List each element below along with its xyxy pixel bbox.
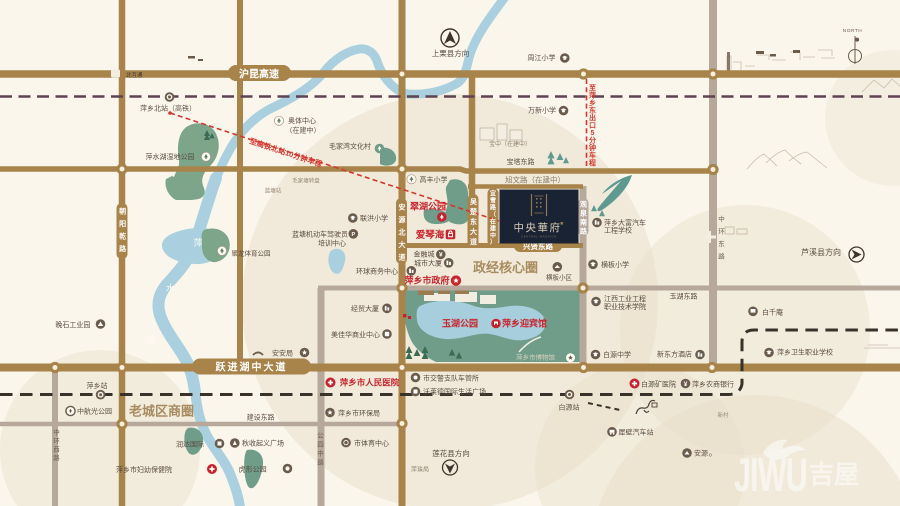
svg-text:P: P <box>351 232 355 238</box>
svg-text:萍乡农商银行: 萍乡农商银行 <box>692 380 734 389</box>
svg-text:横板小区: 横板小区 <box>546 273 573 282</box>
svg-text:毛家塘转盘: 毛家塘转盘 <box>292 177 320 185</box>
svg-text:路: 路 <box>317 458 324 467</box>
svg-text:观: 观 <box>580 200 587 209</box>
svg-text:程: 程 <box>589 158 596 167</box>
svg-text:建: 建 <box>490 225 497 233</box>
svg-text:周江小学: 周江小学 <box>528 53 556 62</box>
svg-text:宜: 宜 <box>490 190 496 198</box>
svg-text:蓝塘站: 蓝塘站 <box>265 187 282 195</box>
svg-text:（: （ <box>490 211 496 219</box>
svg-text:聚龙体育公园: 聚龙体育公园 <box>232 249 271 258</box>
svg-text:园: 园 <box>317 441 324 449</box>
svg-text:JIWU: JIWU <box>734 449 807 501</box>
svg-text:乾: 乾 <box>119 232 126 241</box>
svg-text:路: 路 <box>490 204 497 212</box>
svg-text:出: 出 <box>589 113 596 122</box>
svg-text:大: 大 <box>399 240 406 249</box>
svg-text:南: 南 <box>580 218 587 227</box>
svg-text:北互通: 北互通 <box>126 71 143 79</box>
svg-text:雪: 雪 <box>490 197 496 205</box>
svg-text:（在建中）: （在建中） <box>286 126 321 135</box>
svg-text:美佳华商业中心: 美佳华商业中心 <box>331 330 380 339</box>
svg-text:中: 中 <box>718 214 725 223</box>
svg-text:芦溪县方向: 芦溪县方向 <box>801 247 841 257</box>
svg-text:市交警支队车管所: 市交警支队车管所 <box>423 374 479 383</box>
svg-text:河: 河 <box>146 335 155 346</box>
svg-text:玉湖公园: 玉湖公园 <box>442 318 478 329</box>
svg-text:跃进湖中大道: 跃进湖中大道 <box>216 361 288 374</box>
svg-text:路: 路 <box>718 252 725 261</box>
svg-text:上栗县方向: 上栗县方向 <box>432 48 470 58</box>
svg-text:萍乡迎宾馆: 萍乡迎宾馆 <box>502 318 547 329</box>
svg-text:车: 车 <box>589 151 596 160</box>
svg-text:奥体中心: 奥体中心 <box>288 116 316 125</box>
svg-text:大: 大 <box>470 227 477 236</box>
svg-text:口: 口 <box>589 122 596 130</box>
svg-text:翠湖公园: 翠湖公园 <box>410 201 446 212</box>
svg-text:白源中学: 白源中学 <box>603 350 631 359</box>
svg-text:莲花县方向: 莲花县方向 <box>432 448 470 458</box>
svg-text:安安局: 安安局 <box>272 349 293 358</box>
svg-text:o: o <box>709 453 712 459</box>
svg-text:职业技术学院: 职业技术学院 <box>604 302 646 311</box>
svg-text:秋收起义广场: 秋收起义广场 <box>242 439 284 448</box>
svg-text:蓝塘机动车驾驶员: 蓝塘机动车驾驶员 <box>292 230 348 239</box>
svg-text:萍乡站: 萍乡站 <box>87 381 108 390</box>
svg-text:北: 北 <box>399 228 406 237</box>
svg-text:宝塔东路: 宝塔东路 <box>507 157 535 166</box>
svg-text:爱琴海: 爱琴海 <box>416 229 445 241</box>
svg-text:安: 安 <box>399 203 406 212</box>
svg-text:安源: 安源 <box>694 449 708 458</box>
svg-text:楚: 楚 <box>469 207 478 216</box>
svg-text:吴: 吴 <box>470 197 478 206</box>
svg-text:乡: 乡 <box>589 99 596 107</box>
svg-text:萍乡北站（高铁）: 萍乡北站（高铁） <box>140 104 196 113</box>
svg-text:朝: 朝 <box>119 207 126 216</box>
svg-text:老城区商圈: 老城区商圈 <box>128 404 194 419</box>
svg-text:NORTH: NORTH <box>843 28 863 34</box>
svg-text:高丰小学: 高丰小学 <box>420 175 448 184</box>
svg-text:5: 5 <box>591 130 595 137</box>
svg-text:路: 路 <box>53 453 60 462</box>
svg-text:中: 中 <box>317 449 324 458</box>
svg-text:西: 西 <box>53 446 60 454</box>
svg-text:横板小学: 横板小学 <box>601 260 629 269</box>
svg-text:万新小学: 万新小学 <box>528 106 556 115</box>
svg-text:东: 东 <box>718 239 725 248</box>
svg-text:中: 中 <box>490 232 496 240</box>
svg-text:江西工业工程: 江西工业工程 <box>604 294 646 303</box>
svg-text:白源站: 白源站 <box>559 403 580 412</box>
svg-text:萍乡卫生职业学校: 萍乡卫生职业学校 <box>777 348 833 357</box>
svg-text:晚石工业园: 晚石工业园 <box>55 320 90 329</box>
svg-text:新村: 新村 <box>717 411 729 419</box>
svg-text:阳: 阳 <box>119 219 126 228</box>
svg-text:萍乡市博物馆: 萍乡市博物馆 <box>516 353 556 362</box>
svg-text:市体育中心: 市体育中心 <box>354 439 389 448</box>
svg-text:旭文路（在建中）: 旭文路（在建中） <box>505 175 565 185</box>
svg-text:工程学校: 工程学校 <box>604 226 632 235</box>
svg-text:中航光公园: 中航光公园 <box>77 407 112 416</box>
svg-text:建设东路: 建设东路 <box>247 413 275 422</box>
svg-text:道: 道 <box>470 237 477 246</box>
svg-text:玉湖东路: 玉湖东路 <box>670 292 698 301</box>
svg-text:宝中（在建中）: 宝中（在建中） <box>489 140 531 148</box>
svg-text:萍珠局: 萍珠局 <box>411 466 429 474</box>
svg-text:虎形公园: 虎形公园 <box>239 465 267 474</box>
svg-text:分: 分 <box>589 136 596 145</box>
svg-text:金融城: 金融城 <box>414 250 435 259</box>
svg-text:萍乡市政府: 萍乡市政府 <box>404 275 449 286</box>
svg-text:泉: 泉 <box>580 209 588 218</box>
svg-text:在: 在 <box>490 218 496 226</box>
svg-text:源: 源 <box>399 215 406 224</box>
svg-text:培训中心: 培训中心 <box>318 239 346 248</box>
svg-text:）: ） <box>490 238 496 246</box>
svg-text:东: 东 <box>470 217 477 226</box>
svg-text:水: 水 <box>166 283 175 294</box>
svg-text:政经核心圈: 政经核心圈 <box>473 260 538 275</box>
svg-text:白千庵: 白千庵 <box>762 308 783 317</box>
svg-text:沃莱德国际生活广场: 沃莱德国际生活广场 <box>423 387 486 396</box>
svg-text:犀壁汽车站: 犀壁汽车站 <box>619 428 654 437</box>
svg-text:中: 中 <box>53 428 60 437</box>
svg-text:中央華府: 中央華府 <box>514 221 562 234</box>
svg-text:环: 环 <box>53 437 60 445</box>
svg-text:钟: 钟 <box>589 143 596 152</box>
svg-text:萍: 萍 <box>193 238 202 248</box>
svg-text:润达国际: 润达国际 <box>176 440 204 449</box>
svg-text:道: 道 <box>399 253 406 262</box>
svg-text:吉屋: 吉屋 <box>809 461 859 489</box>
svg-text:毛家湾文化村: 毛家湾文化村 <box>329 142 371 151</box>
svg-text:新东方酒店: 新东方酒店 <box>657 350 692 359</box>
svg-text:路: 路 <box>119 244 127 253</box>
svg-text:东: 东 <box>589 106 596 115</box>
svg-text:至: 至 <box>589 84 596 92</box>
svg-text:沪昆高速: 沪昆高速 <box>239 68 279 81</box>
svg-text:CENTRAL MANSION: CENTRAL MANSION <box>521 235 557 239</box>
svg-text:环球商务中心: 环球商务中心 <box>356 267 398 276</box>
svg-text:环: 环 <box>718 228 725 236</box>
svg-text:萍: 萍 <box>589 91 596 100</box>
svg-text:萍乡市妇幼保健院: 萍乡市妇幼保健院 <box>116 465 172 474</box>
svg-text:白源矿医院: 白源矿医院 <box>641 380 676 389</box>
svg-text:城市大厦: 城市大厦 <box>414 259 442 268</box>
svg-text:路: 路 <box>580 227 588 236</box>
svg-text:萍水湖湿地公园: 萍水湖湿地公园 <box>146 152 195 161</box>
svg-text:萍乡市环保局: 萍乡市环保局 <box>338 409 380 418</box>
svg-text:经贸大厦: 经贸大厦 <box>351 304 379 313</box>
svg-text:萍乡大富汽车: 萍乡大富汽车 <box>604 218 646 227</box>
svg-text:公: 公 <box>317 433 324 440</box>
svg-text:联洪小学: 联洪小学 <box>360 214 388 223</box>
svg-text:萍乡市人民医院: 萍乡市人民医院 <box>340 378 400 388</box>
